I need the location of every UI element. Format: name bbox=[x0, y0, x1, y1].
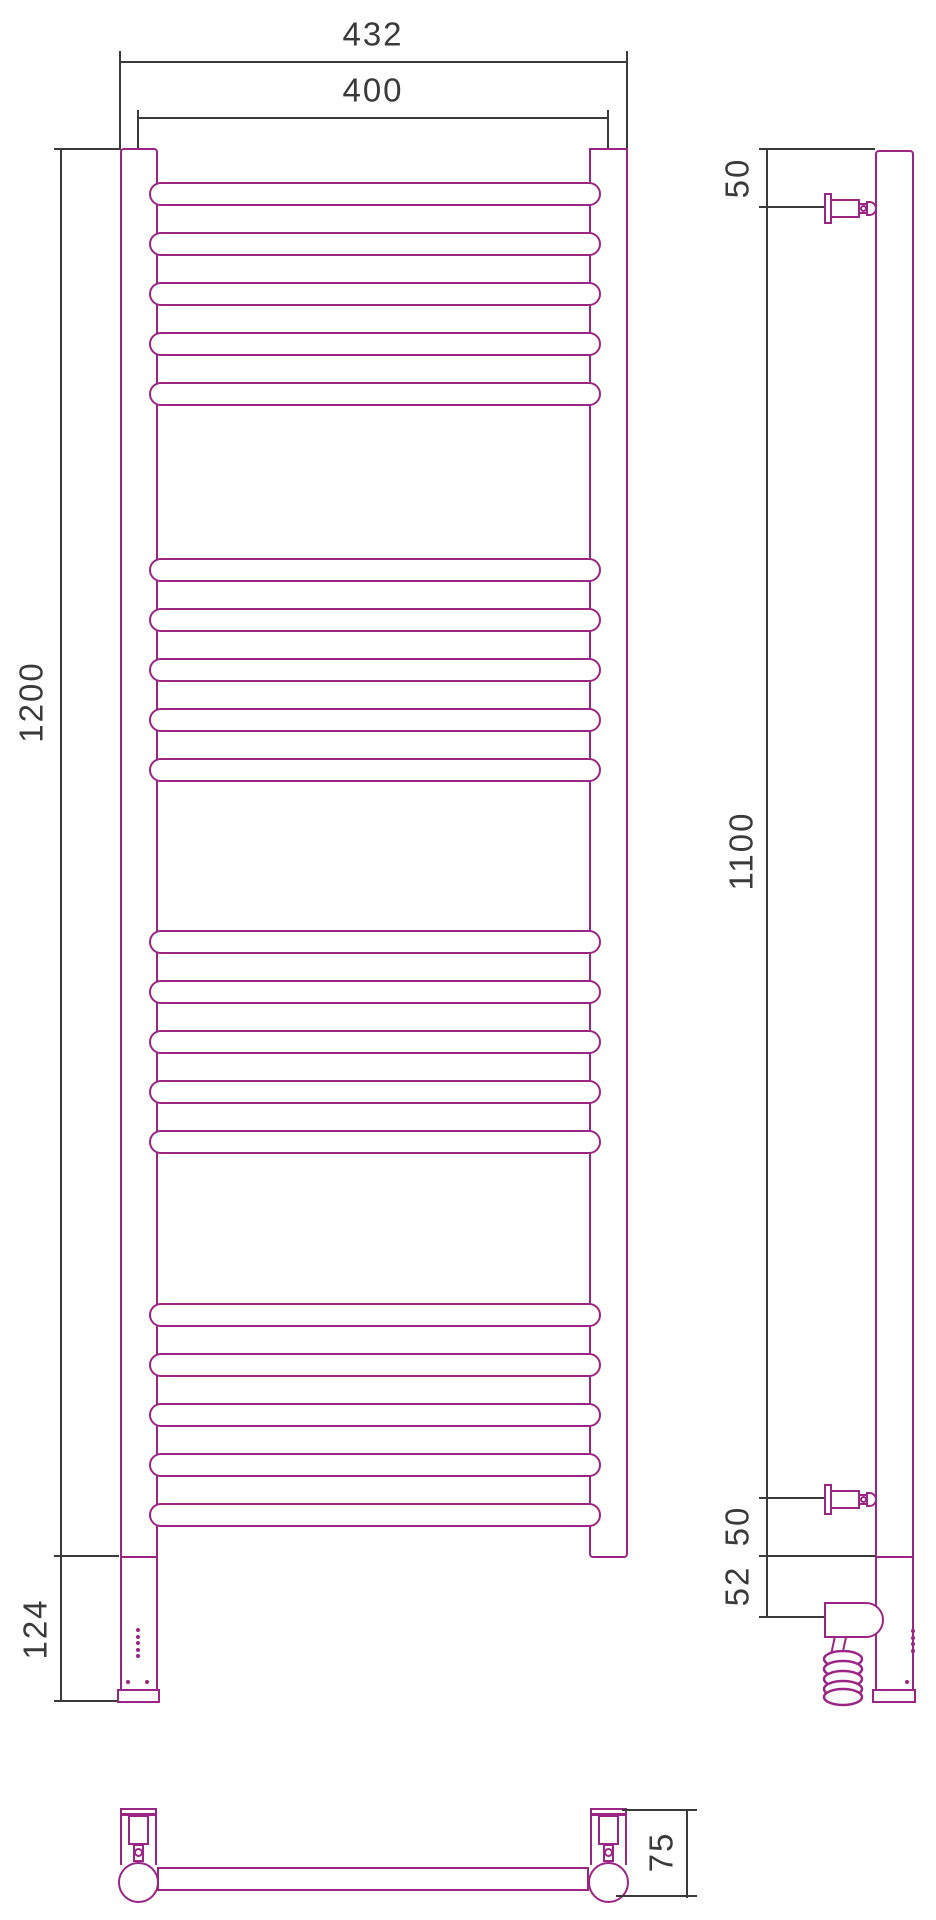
indicator-led-dot bbox=[911, 1636, 915, 1640]
side-tube bbox=[875, 150, 914, 1558]
front-rung bbox=[149, 1080, 601, 1104]
front-screw-dot-right bbox=[145, 1680, 149, 1684]
topview-rail-tube bbox=[157, 1867, 589, 1891]
front-rung bbox=[149, 382, 601, 406]
indicator-led-dot bbox=[911, 1629, 915, 1633]
bottom-bracket-body bbox=[830, 1490, 860, 1509]
front-rung bbox=[149, 930, 601, 954]
indicator-led-dot bbox=[136, 1648, 140, 1652]
side-tick-top-bracket bbox=[759, 206, 825, 208]
front-right-tube bbox=[589, 148, 628, 1558]
front-rung bbox=[149, 608, 601, 632]
top-bracket-body bbox=[830, 199, 860, 218]
front-rung bbox=[149, 1030, 601, 1054]
extension-line-432-left bbox=[119, 51, 121, 150]
topview-right-bracket-body bbox=[598, 1815, 619, 1845]
front-rung bbox=[149, 332, 601, 356]
heating-element-body bbox=[824, 1602, 884, 1638]
side-dimension-line bbox=[766, 149, 768, 1618]
side-tick-tube-bottom bbox=[759, 1555, 883, 1557]
front-rung bbox=[149, 558, 601, 582]
front-bottom-cap bbox=[117, 1689, 160, 1703]
indicator-led-dot bbox=[911, 1649, 915, 1653]
indicator-led-dot bbox=[136, 1635, 140, 1639]
tick-1200-top bbox=[54, 148, 120, 150]
extension-line-400-left bbox=[137, 110, 139, 149]
indicator-led-dot bbox=[136, 1628, 140, 1632]
side-screw-dot bbox=[905, 1680, 909, 1684]
side-tick-element-axis bbox=[759, 1616, 824, 1618]
towel-rail-technical-drawing: 432 400 1200 124 50 1100 50 52 bbox=[0, 0, 936, 1920]
front-screw-dot-left bbox=[126, 1680, 130, 1684]
dimension-line-1200 bbox=[60, 149, 62, 1557]
front-rung bbox=[149, 182, 601, 206]
front-rung bbox=[149, 980, 601, 1004]
topview-left-bracket-body bbox=[128, 1815, 149, 1845]
front-rung bbox=[149, 1453, 601, 1477]
front-rung bbox=[149, 1303, 601, 1327]
front-rung bbox=[149, 758, 601, 782]
dimension-line-400 bbox=[138, 117, 608, 119]
tick-124-bottom bbox=[54, 1700, 119, 1702]
front-rung bbox=[149, 1353, 601, 1377]
dim-label-axis-width: 400 bbox=[342, 74, 403, 107]
dim-label-height: 1200 bbox=[15, 661, 48, 742]
front-rung bbox=[149, 1403, 601, 1427]
front-rung bbox=[149, 1130, 601, 1154]
extension-line-400-right bbox=[607, 110, 609, 149]
front-rung bbox=[149, 232, 601, 256]
dimension-line-432 bbox=[120, 61, 627, 63]
dim-label-bracket-span: 1100 bbox=[725, 812, 758, 891]
tick-75-top bbox=[622, 1809, 697, 1811]
dim-label-element-axis-offset: 52 bbox=[721, 1566, 754, 1607]
dimension-line-75 bbox=[686, 1810, 688, 1898]
topview-left-tube-circle bbox=[118, 1862, 159, 1903]
tick-75-bottom bbox=[616, 1895, 697, 1897]
front-control-box bbox=[120, 1558, 158, 1689]
dim-label-bottom-bracket-offset: 50 bbox=[721, 1506, 754, 1547]
dim-label-top-bracket-offset: 50 bbox=[721, 158, 754, 199]
dimension-line-124 bbox=[60, 1557, 62, 1702]
side-bottom-cap bbox=[872, 1689, 916, 1703]
topview-right-bracket-pin-circle bbox=[604, 1848, 613, 1857]
front-left-tube bbox=[120, 148, 158, 1558]
indicator-led-dot bbox=[911, 1642, 915, 1646]
front-rung bbox=[149, 708, 601, 732]
side-tick-top bbox=[759, 148, 875, 150]
topview-left-bracket-pin-circle bbox=[134, 1848, 143, 1857]
side-tick-bottom-bracket bbox=[759, 1497, 825, 1499]
tick-1200-bottom bbox=[54, 1555, 119, 1557]
dim-label-control-box-height: 124 bbox=[19, 1598, 52, 1659]
dim-label-depth: 75 bbox=[645, 1832, 678, 1873]
front-rung bbox=[149, 282, 601, 306]
power-cable-coil-icon bbox=[814, 1650, 876, 1710]
front-rung bbox=[149, 1503, 601, 1527]
front-rung bbox=[149, 658, 601, 682]
dim-label-overall-width: 432 bbox=[342, 18, 403, 51]
extension-line-432-right bbox=[626, 51, 628, 149]
